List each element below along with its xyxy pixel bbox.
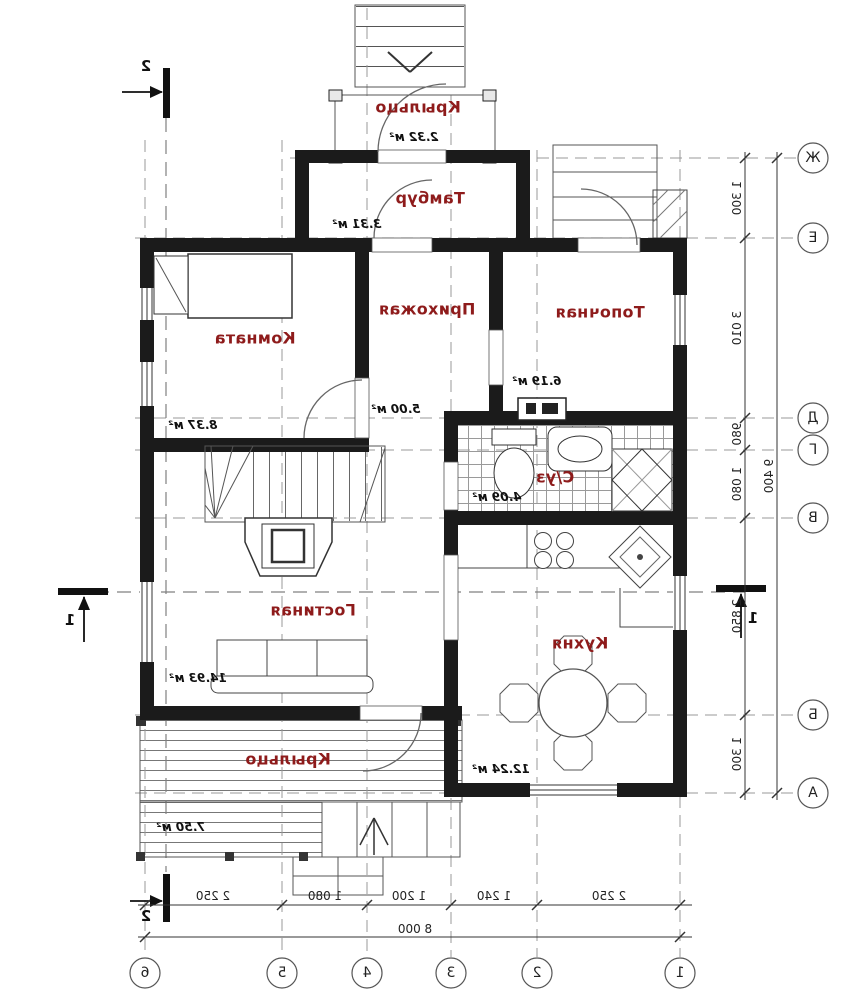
area-label-room: 8.37 м² bbox=[169, 418, 218, 432]
side-stoop bbox=[553, 145, 687, 245]
interior-stairs bbox=[205, 446, 385, 522]
dim-bottom-4-3: 1 200 bbox=[392, 889, 426, 903]
wardrobe bbox=[154, 256, 188, 314]
room-label-porch-bottom: Крыльцо bbox=[245, 750, 331, 769]
boiler-unit bbox=[518, 398, 566, 420]
plan-linework bbox=[0, 0, 842, 1000]
room-label-boiler: Топочная bbox=[555, 303, 644, 322]
room-label-living: Гостиная bbox=[270, 601, 356, 620]
axis-bubble-d: Д bbox=[808, 410, 819, 426]
floor-plan-sheet: Крыльцо Тамбур Прихожая Топочная Комната… bbox=[0, 0, 842, 1000]
dim-bottom-5-4: 1 080 bbox=[308, 889, 342, 903]
area-label-porch-bottom: 7.50 м² bbox=[157, 820, 206, 834]
area-label-bathroom: 4.09 м² bbox=[473, 490, 522, 504]
area-label-living: 14.93 м² bbox=[169, 671, 226, 685]
section-label-1-right: 1 bbox=[748, 609, 758, 627]
area-label-kitchen: 12.24 м² bbox=[472, 762, 529, 776]
dim-right-total: 9 400 bbox=[762, 459, 776, 493]
axis-bubble-1: 1 bbox=[676, 965, 685, 981]
dining-set bbox=[500, 636, 646, 770]
sink bbox=[548, 427, 612, 471]
axis-bubble-zh: Ж bbox=[805, 150, 820, 166]
axis-bubble-b: Б bbox=[808, 707, 818, 723]
windows bbox=[140, 288, 687, 797]
dim-right-d-g: 980 bbox=[730, 423, 744, 446]
area-label-tambour: 3.31 м² bbox=[333, 217, 382, 231]
axis-bubble-v: В bbox=[808, 510, 818, 526]
axis-bubble-2: 2 bbox=[533, 965, 542, 981]
section-label-2-top: 2 bbox=[141, 57, 151, 75]
dim-right-v-b: 2 850 bbox=[730, 599, 744, 633]
axis-bubble-5: 5 bbox=[278, 965, 287, 981]
dim-bottom-total: 8 000 bbox=[398, 922, 432, 936]
axis-bubble-4: 4 bbox=[363, 965, 372, 981]
axis-bubble-g: Г bbox=[809, 442, 818, 458]
dim-bottom-3-2: 1 240 bbox=[477, 889, 511, 903]
dim-bottom-2-1: 2 250 bbox=[592, 889, 626, 903]
toilet bbox=[492, 429, 536, 498]
sofa bbox=[211, 640, 373, 693]
dim-right-zh-e: 1 300 bbox=[730, 181, 744, 215]
area-label-hallway: 5.00 м² bbox=[372, 402, 421, 416]
section-label-2-bottom: 2 bbox=[141, 907, 151, 925]
axis-bubble-3: 3 bbox=[447, 965, 456, 981]
cooktop bbox=[535, 533, 574, 569]
axis-bubble-6: 6 bbox=[141, 965, 150, 981]
dim-bottom-6-5: 2 250 bbox=[196, 889, 230, 903]
section-label-1-left: 1 bbox=[65, 611, 75, 629]
shower bbox=[612, 449, 672, 511]
axis-bubble-e: Е bbox=[809, 230, 818, 246]
room-label-kitchen: Кухня bbox=[552, 634, 609, 653]
bed bbox=[188, 254, 292, 318]
room-label-hallway: Прихожая bbox=[379, 300, 476, 319]
dim-right-e-d: 3 010 bbox=[730, 311, 744, 345]
dim-right-b-a: 1 300 bbox=[730, 737, 744, 771]
axis-bubble-a: А bbox=[808, 785, 818, 801]
room-label-bathroom: С/уз bbox=[536, 468, 575, 487]
room-label-tambour: Тамбур bbox=[395, 189, 465, 208]
room-label-room: Комната bbox=[214, 329, 295, 348]
top-exterior-stairs bbox=[355, 5, 465, 87]
area-label-boiler: 6.19 м² bbox=[513, 374, 562, 388]
corner-sink bbox=[609, 526, 671, 588]
area-label-porch-top: 2.32 м² bbox=[390, 130, 439, 144]
dim-right-g-v: 1 080 bbox=[730, 467, 744, 501]
room-label-porch-top: Крыльцо bbox=[375, 98, 461, 117]
fireplace bbox=[245, 518, 332, 576]
